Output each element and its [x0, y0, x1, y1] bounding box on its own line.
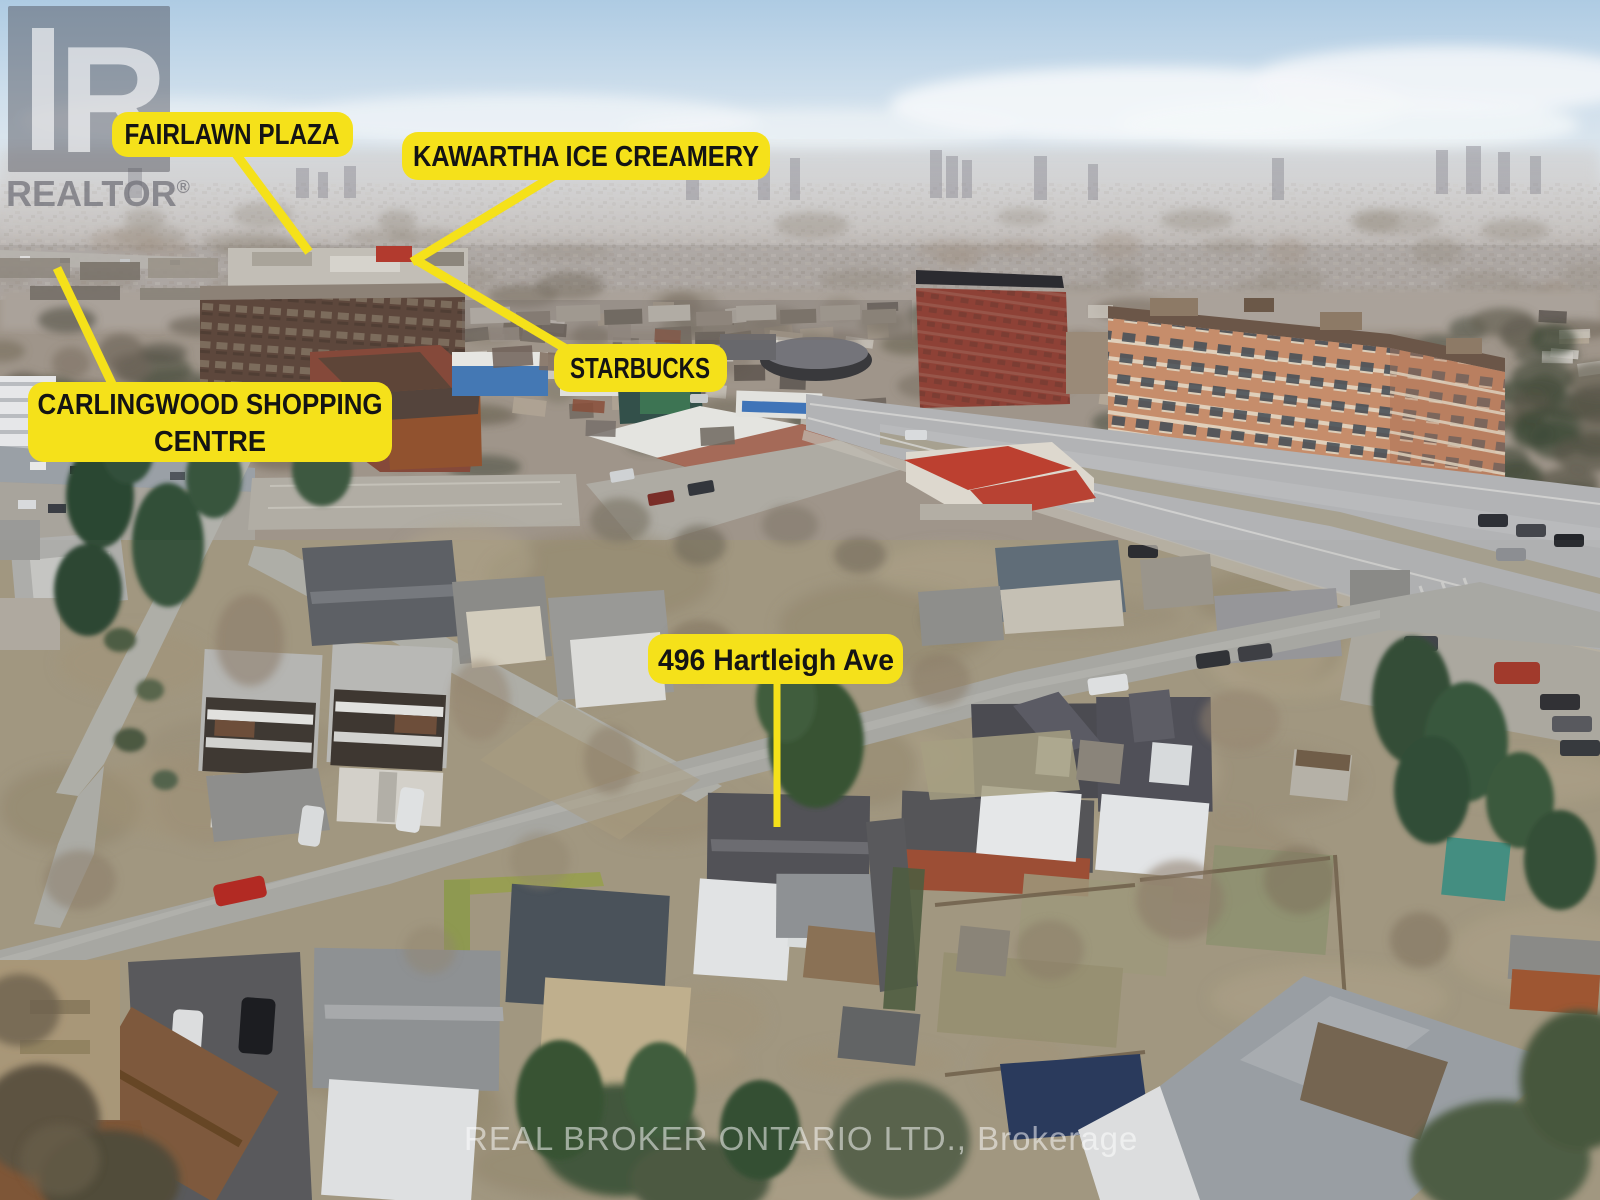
svg-text:CARLINGWOOD SHOPPING: CARLINGWOOD SHOPPING	[38, 389, 383, 421]
svg-text:R: R	[58, 15, 168, 185]
svg-text:CENTRE: CENTRE	[154, 426, 266, 458]
svg-text:REAL BROKER ONTARIO LTD., Brok: REAL BROKER ONTARIO LTD., Brokerage	[464, 1120, 1138, 1157]
svg-text:496 Hartleigh Ave: 496 Hartleigh Ave	[658, 644, 894, 677]
svg-text:REALTOR®: REALTOR®	[6, 173, 190, 214]
svg-text:KAWARTHA ICE CREAMERY: KAWARTHA ICE CREAMERY	[413, 141, 759, 173]
svg-text:STARBUCKS: STARBUCKS	[570, 353, 710, 385]
svg-text:FAIRLAWN PLAZA: FAIRLAWN PLAZA	[125, 119, 340, 151]
